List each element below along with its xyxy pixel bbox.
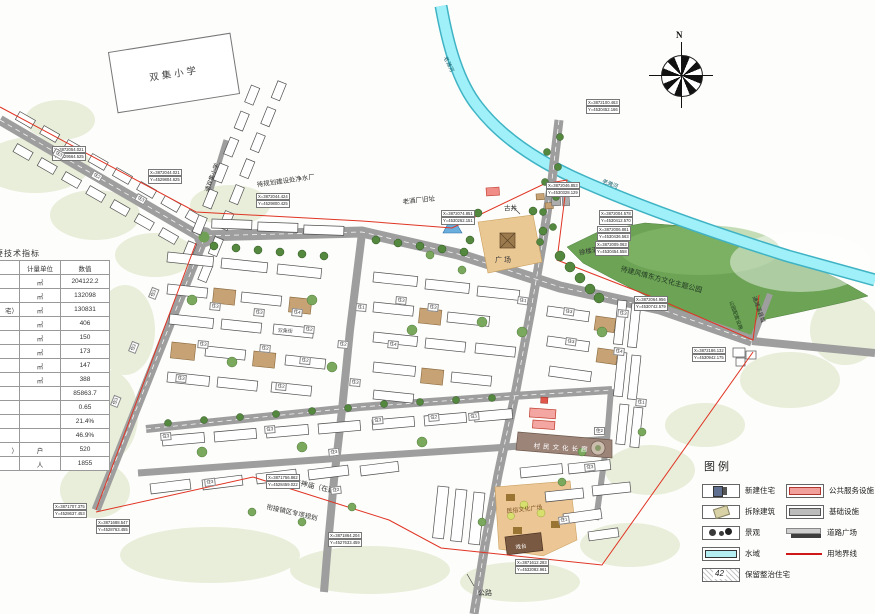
coordinate-y: Y=4528637.453 — [53, 510, 87, 517]
site-plan-page: 双集小学 主要技术指标 计量单位 数值 ㎡ 204122.2 ㎡ 132098 — [0, 0, 875, 614]
legend-item-label: 保留整治住宅 — [745, 569, 790, 580]
building-label: 住3 — [563, 307, 575, 316]
building-label: 住2 — [259, 344, 271, 353]
building-label: 住3 — [264, 425, 276, 433]
legend-item: 基础设施 — [786, 505, 874, 518]
coordinate-x: X=3871707.375 — [53, 503, 87, 510]
coordinate-x: X=3871612.283 — [515, 559, 549, 566]
header-name — [0, 261, 20, 275]
coordinate-callout: X=3872074.851 Y=4530262.151 — [441, 210, 475, 225]
north-label: N — [676, 30, 683, 40]
coordinate-y: Y=4529804.625 — [148, 176, 182, 183]
coordinate-y: Y=4529800.425 — [256, 200, 290, 207]
building-label: 住1 — [517, 296, 529, 305]
legend-right-column: 公共服务设施 基础设施 道路广场 用地界线 — [786, 484, 874, 568]
table-row: ㎡ 132098 — [0, 289, 110, 303]
coordinate-callout: X=3872004.578 Y=4530412.570 — [599, 210, 633, 225]
table-row: ㎡ 204122.2 — [0, 275, 110, 289]
indicator-table-title: 主要技术指标 — [0, 248, 40, 259]
coordinate-x: X=3872186.132 — [692, 347, 726, 354]
legend-swatch-icon — [702, 484, 740, 498]
school-label: 双集小学 — [148, 62, 200, 84]
building-label: 住3 — [584, 463, 596, 472]
coordinate-callout: X=3872044.021 Y=4529804.625 — [148, 169, 182, 184]
legend-item-label: 新建住宅 — [745, 485, 775, 496]
coordinate-callout: X=3871756.862 Y=4528459.022 — [266, 474, 300, 489]
coordinate-y: Y=4530942.175 — [692, 354, 726, 361]
legend-item-label: 水域 — [745, 548, 760, 559]
compass-horizontal-line — [649, 75, 713, 76]
table-row: ㎡ 147 — [0, 359, 110, 373]
coordinate-y: Y=4530742.579 — [634, 303, 668, 310]
coordinate-x: X=3872046.853 — [546, 182, 580, 189]
legend-swatch-icon — [786, 527, 822, 539]
building-label: 住2 — [299, 356, 311, 365]
map-label: 广场 — [495, 255, 513, 265]
indicator-table: 计量单位 数值 ㎡ 204122.2 ㎡ 132098 宅） ㎡ 130831 — [0, 260, 110, 471]
coordinate-x: X=3872009.063 — [595, 241, 629, 248]
table-header-row: 计量单位 数值 — [0, 261, 110, 275]
building-label: 住3 — [160, 432, 172, 440]
table-row: 46.9% — [0, 429, 110, 443]
building-label: 住4 — [387, 340, 399, 349]
building-label: 住4 — [291, 308, 303, 317]
legend-item-label: 基础设施 — [829, 506, 859, 517]
table-row: 85863.7 — [0, 387, 110, 401]
legend-item: 用地界线 — [786, 547, 874, 560]
legend-swatch-icon — [702, 547, 740, 561]
legend-item: 水域 — [702, 547, 790, 560]
coordinate-y: Y=4530262.151 — [441, 217, 475, 224]
coordinate-y: Y=4527633.459 — [328, 539, 362, 546]
legend-left-column: 新建住宅 拆除建筑 景观 水域 — [702, 484, 790, 589]
coordinate-y: Y=4530454.558 — [595, 248, 629, 255]
legend-swatch-icon — [786, 548, 822, 560]
legend-swatch-icon — [786, 484, 824, 498]
legend-badge: 42 — [713, 569, 726, 579]
building-label: 住3 — [175, 374, 187, 383]
map-label: 戏台 — [515, 542, 527, 551]
coordinate-y: Y=4530436.563 — [597, 233, 631, 240]
building-label: 住3 — [617, 309, 629, 318]
legend-item-label: 景观 — [745, 527, 760, 538]
building-label: 住2 — [594, 427, 605, 435]
building-label: 住2 — [330, 486, 342, 495]
coordinate-x: X=3871864.204 — [328, 532, 362, 539]
table-row: ㎡ 388 — [0, 373, 110, 387]
building-label: 住2 — [303, 325, 315, 334]
coordinate-callout: X=3872006.881 Y=4530436.563 — [597, 226, 631, 241]
building-label: 住3 — [328, 448, 340, 457]
coordinate-callout: X=3871612.283 Y=4532082.961 — [515, 559, 549, 574]
building-label: 住3 — [427, 303, 439, 312]
coordinate-x: X=3872044.424 — [256, 193, 290, 200]
building-label: 住2 — [428, 413, 440, 421]
legend-swatch-icon — [702, 526, 740, 540]
coordinate-callout: X=3872044.424 Y=4529800.425 — [256, 193, 290, 208]
table-row: ㎡ 150 — [0, 331, 110, 345]
coordinate-x: X=3872064.956 — [634, 296, 668, 303]
building-label: 住3 — [349, 378, 361, 387]
legend-swatch-icon — [702, 505, 740, 519]
building-label: 住1 — [355, 303, 367, 312]
building-label: 住1 — [468, 412, 480, 420]
table-row: 人 1855 — [0, 457, 110, 471]
coordinate-callout: X=3872064.956 Y=4530742.579 — [634, 296, 668, 311]
building-label: 住3 — [372, 416, 384, 424]
legend-swatch-icon: 42 — [702, 568, 740, 582]
coordinate-x: X=3872044.021 — [148, 169, 182, 176]
coordinate-x: X=3872100.463 — [586, 99, 620, 106]
coordinate-x: X=3872074.851 — [441, 210, 475, 217]
building-label: 住1 — [558, 515, 570, 524]
header-value: 数值 — [61, 261, 110, 275]
table-row: ） 户 520 — [0, 443, 110, 457]
table-row: 0.65 — [0, 401, 110, 415]
coordinate-callout: X=3872100.463 Y=4530452.166 — [586, 99, 620, 114]
building-label: 住3 — [395, 296, 407, 305]
map-label: 双集街 — [278, 327, 293, 335]
compass-rose-icon — [661, 55, 703, 97]
map-label: 古井 — [504, 202, 517, 212]
building-label: 住3 — [204, 478, 216, 487]
legend-item: 新建住宅 — [702, 484, 790, 497]
legend-item: 公共服务设施 — [786, 484, 874, 497]
legend-swatch-icon — [786, 505, 824, 519]
coordinate-x: X=3872004.578 — [599, 210, 633, 217]
legend-item: 拆除建筑 — [702, 505, 790, 518]
building-label: 住3 — [565, 337, 577, 346]
compass: N — [649, 30, 713, 108]
legend-item-label: 用地界线 — [827, 548, 857, 559]
coordinate-x: X=3871756.862 — [266, 474, 300, 481]
table-row: 21.4% — [0, 415, 110, 429]
coordinate-x: X=3871688.547 — [96, 519, 130, 526]
coordinate-y: Y=4532082.961 — [515, 566, 549, 573]
coordinate-callout: X=3871707.375 Y=4528637.453 — [53, 503, 87, 518]
building-label: 住3 — [197, 340, 209, 349]
coordinate-callout: X=3871864.204 Y=4527633.459 — [328, 532, 362, 547]
map-label: 公路 — [478, 588, 492, 598]
table-row: 宅） ㎡ 130831 — [0, 303, 110, 317]
coordinate-callout: X=3872186.132 Y=4530942.175 — [692, 347, 726, 362]
legend-item: 42 保留整治住宅 — [702, 568, 790, 581]
building-label: 住2 — [337, 340, 349, 349]
table-row: ㎡ 173 — [0, 345, 110, 359]
coordinate-callout: X=3872046.853 Y=4530328.129 — [546, 182, 580, 197]
coordinate-callout: X=3872009.063 Y=4530454.558 — [595, 241, 629, 256]
building-label: 住2 — [275, 382, 287, 391]
coordinate-y: Y=4528459.022 — [266, 481, 300, 488]
legend-item-label: 公共服务设施 — [829, 485, 874, 496]
coordinate-callout: X=3871688.547 Y=4528763.455 — [96, 519, 130, 534]
table-row: ㎡ 406 — [0, 317, 110, 331]
legend-title: 图例 — [704, 458, 874, 474]
building-label: 住4 — [613, 347, 625, 356]
building-label: 住1 — [635, 398, 647, 407]
coordinate-y: Y=4530452.166 — [586, 106, 620, 113]
header-unit: 计量单位 — [20, 261, 61, 275]
building-label: 住3 — [209, 302, 221, 311]
legend-item: 景观 — [702, 526, 790, 539]
legend-item: 道路广场 — [786, 526, 874, 539]
coordinate-y: Y=4530328.129 — [546, 189, 580, 196]
legend: 图例 新建住宅 拆除建筑 景观 — [698, 458, 874, 484]
coordinate-x: X=3872006.881 — [597, 226, 631, 233]
coordinate-y: Y=4530412.570 — [599, 217, 633, 224]
legend-item-label: 拆除建筑 — [745, 506, 775, 517]
legend-item-label: 道路广场 — [827, 527, 857, 538]
public-service-layer — [529, 397, 556, 430]
coordinate-y: Y=4528763.455 — [96, 526, 130, 533]
building-label: 住3 — [253, 308, 265, 317]
